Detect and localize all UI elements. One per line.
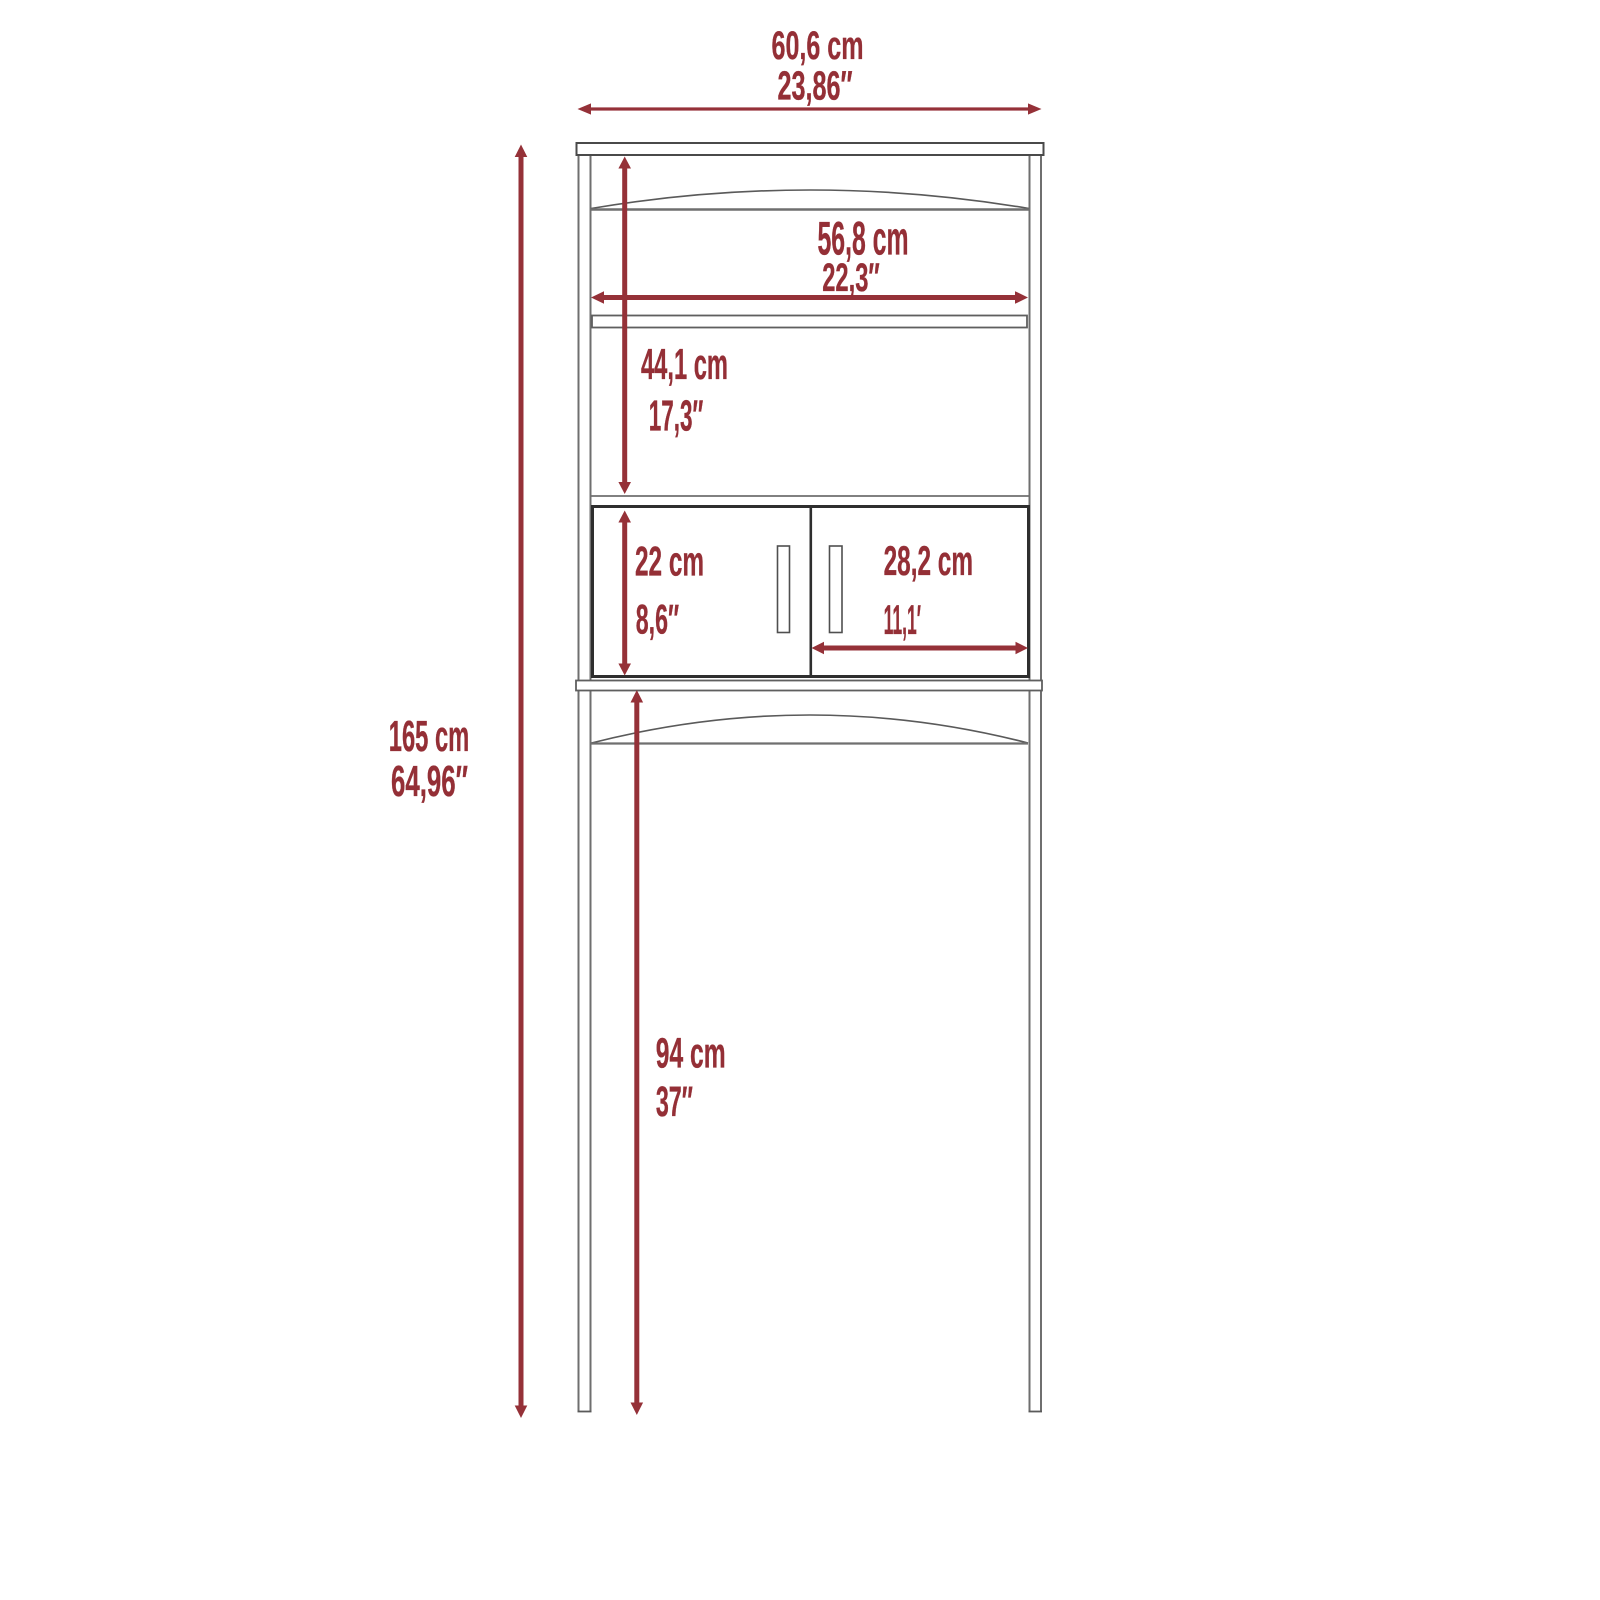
svg-text:165 cm: 165 cm	[389, 712, 470, 761]
svg-text:22,3″: 22,3″	[822, 256, 880, 300]
svg-text:37″: 37″	[656, 1078, 693, 1126]
svg-text:17,3″: 17,3″	[649, 392, 704, 441]
svg-text:64,96″: 64,96″	[391, 757, 468, 806]
svg-text:23,86″: 23,86″	[778, 63, 853, 109]
svg-text:60,6 cm: 60,6 cm	[772, 24, 864, 68]
svg-text:94 cm: 94 cm	[656, 1029, 726, 1077]
svg-text:28,2 cm: 28,2 cm	[884, 537, 973, 584]
svg-text:22 cm: 22 cm	[635, 538, 704, 585]
svg-text:11,1′: 11,1′	[884, 596, 921, 643]
svg-text:8,6″: 8,6″	[636, 595, 679, 642]
svg-text:44,1 cm: 44,1 cm	[641, 340, 728, 389]
